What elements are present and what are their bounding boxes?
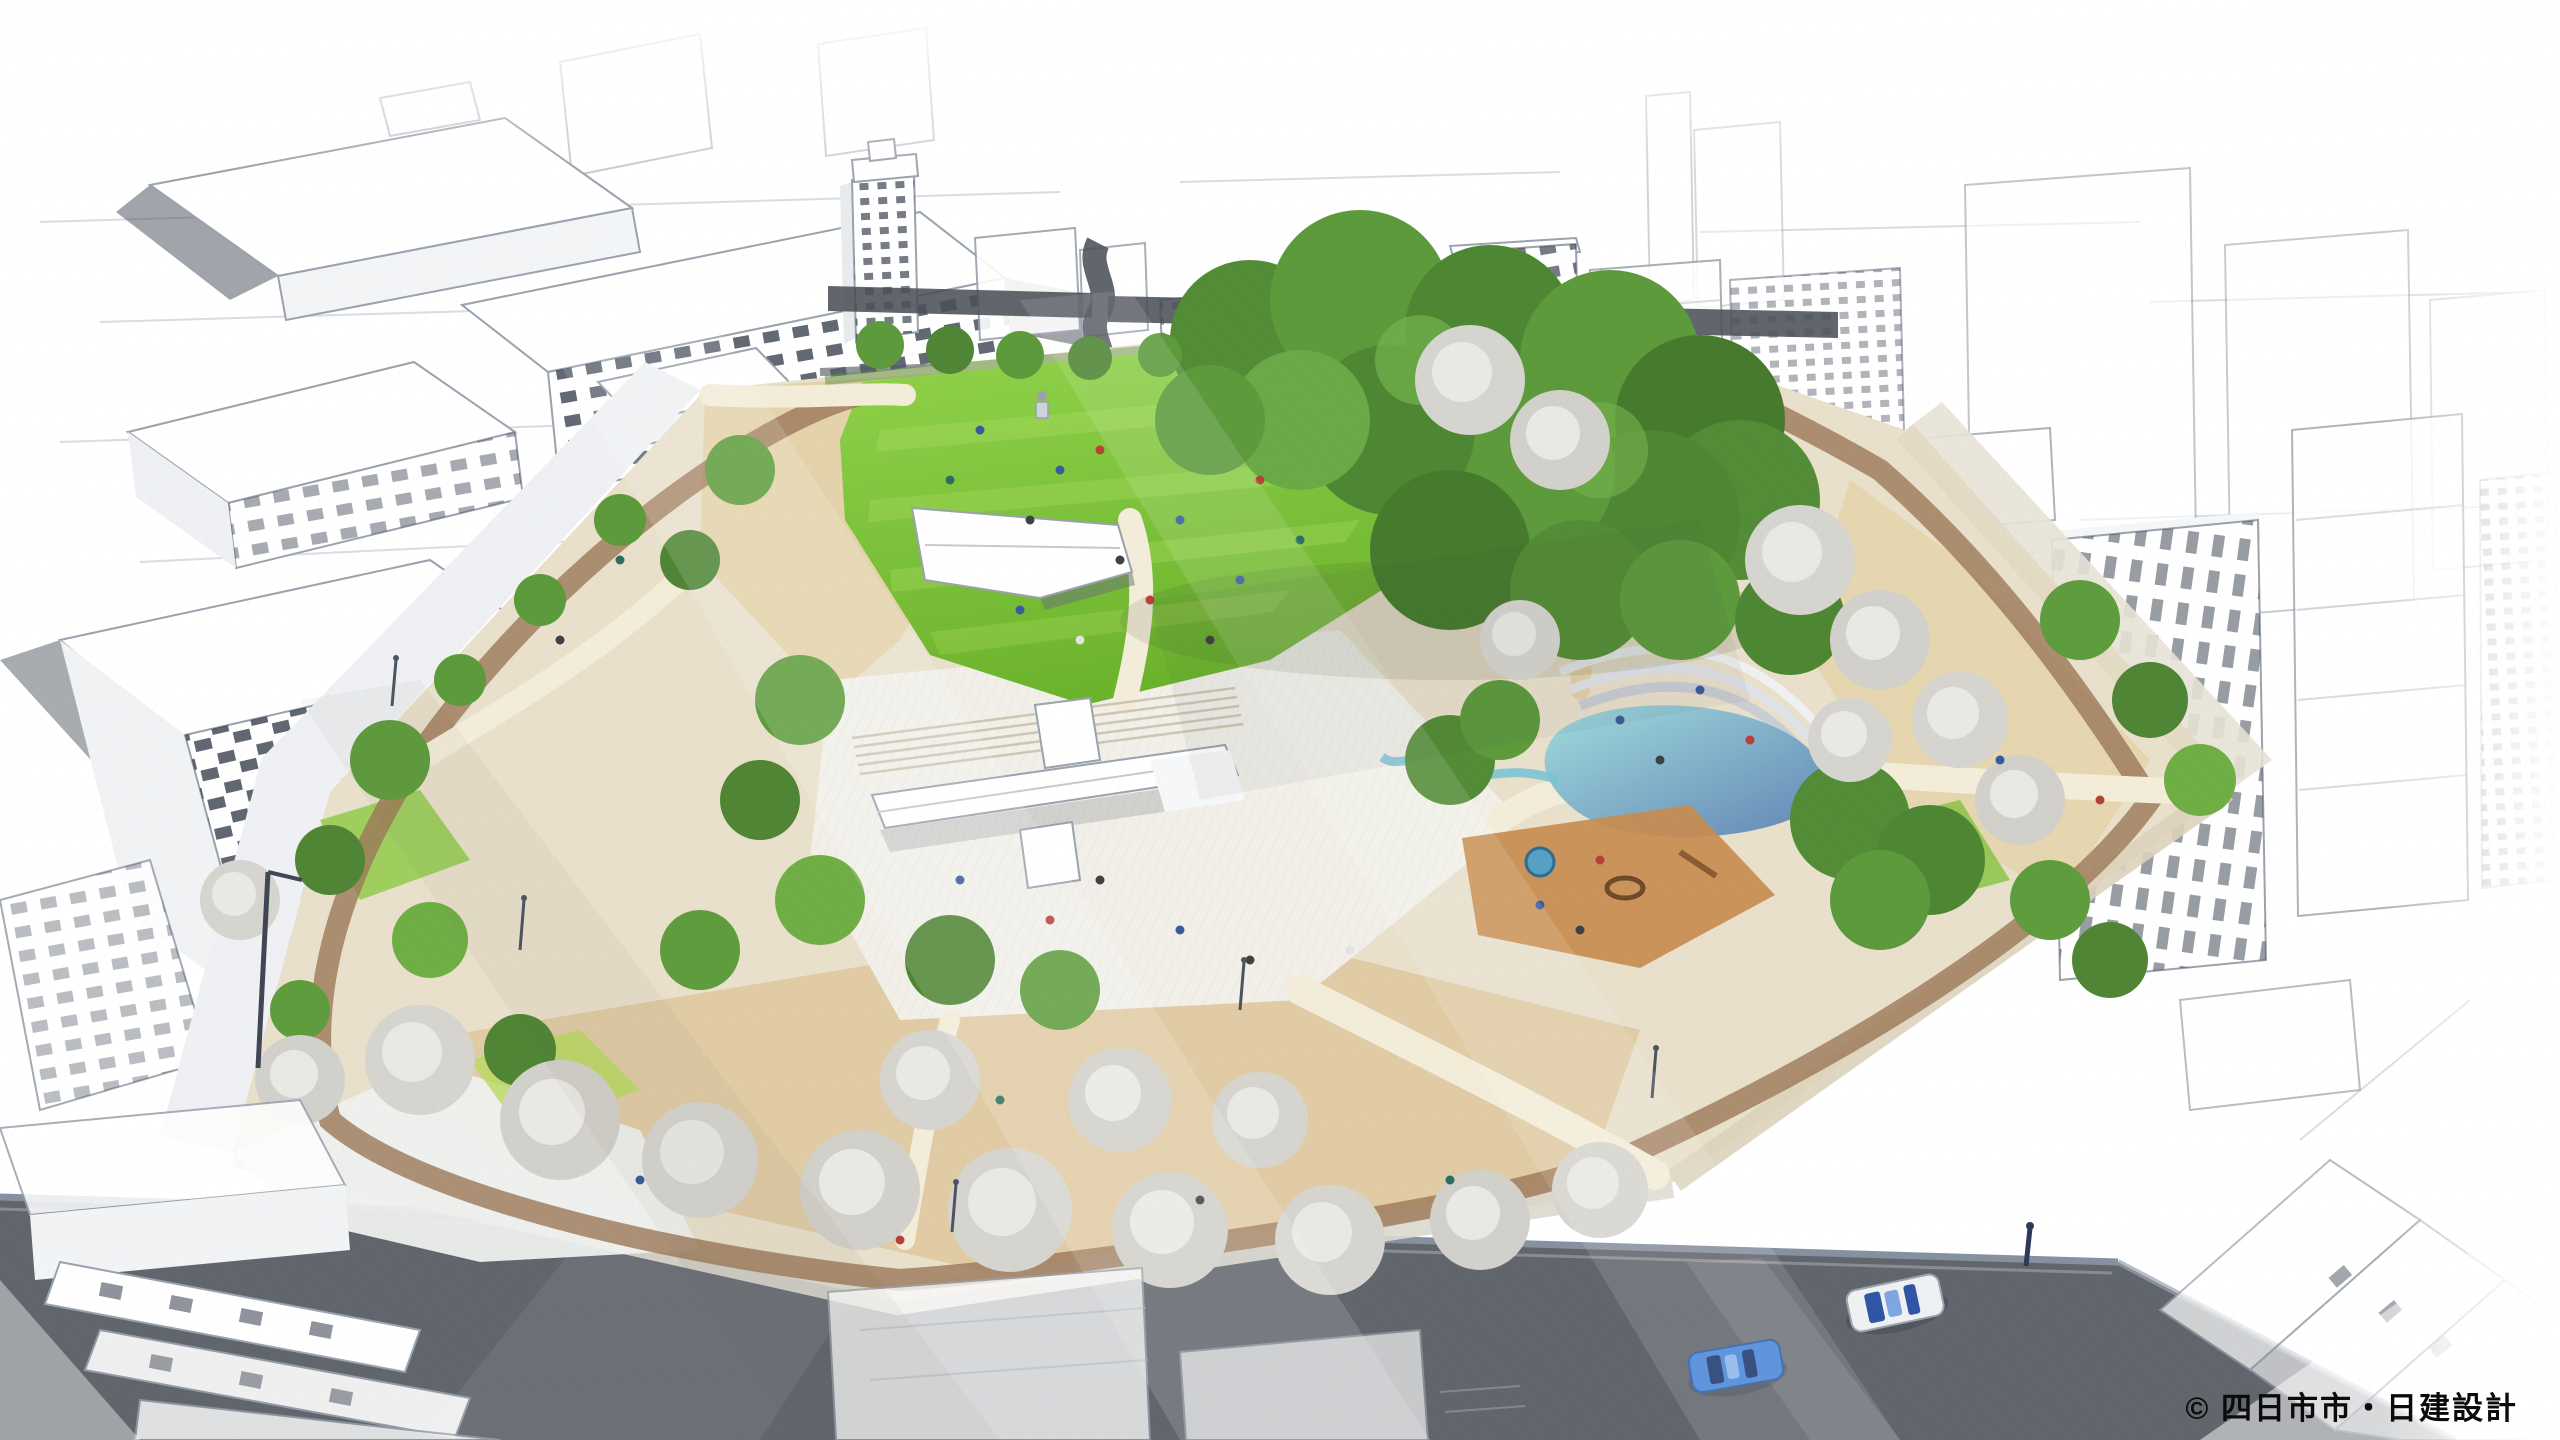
copyright-credit: © 四日市市・日建設計 xyxy=(2186,1383,2518,1428)
pencil-grain xyxy=(0,0,2560,1440)
atmosphere xyxy=(0,0,2560,1440)
park-rendering xyxy=(0,0,2560,1440)
rendering-canvas: © 四日市市・日建設計 xyxy=(0,0,2560,1440)
